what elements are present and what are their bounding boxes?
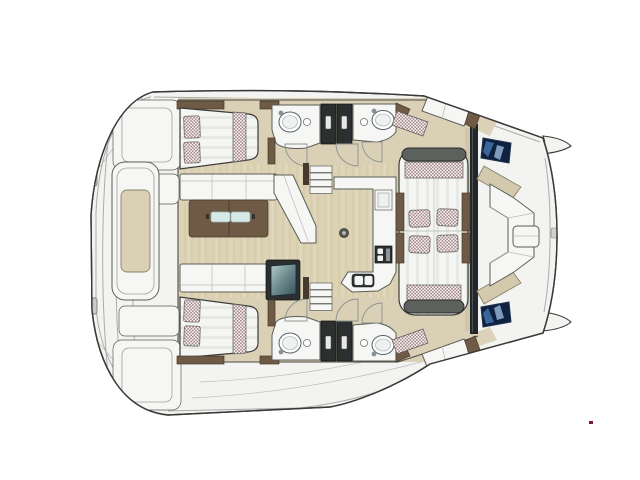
lounger-cushion <box>409 210 431 228</box>
media-cabinet <box>266 260 300 300</box>
bow-fitting <box>551 228 557 238</box>
table-glass-insert <box>231 212 250 222</box>
artifact-dot <box>589 421 593 424</box>
faucet-icon <box>372 109 377 114</box>
pillow-checkered <box>184 142 201 164</box>
yacht-floorplan-canvas <box>0 0 640 480</box>
toilet-icon <box>360 339 367 346</box>
toilet-icon <box>360 118 367 125</box>
lounger-rail <box>462 233 470 263</box>
headboard-trim-bottom <box>177 356 224 364</box>
aft-cockpit-table <box>112 162 159 300</box>
lounger-rail <box>396 233 404 263</box>
berth-blanket-band <box>233 304 246 354</box>
lounger-cushion <box>437 209 459 227</box>
cooktop <box>375 246 392 263</box>
pillow-checkered <box>184 326 201 347</box>
saloon-coffee-table <box>189 200 268 237</box>
lounger-checker-band-bottom <box>407 285 461 300</box>
lounger-checker-band-top <box>405 162 463 178</box>
double-sink <box>352 274 374 287</box>
foredeck-hatch-starboard <box>481 302 511 327</box>
lounger-headrest-top <box>402 148 466 161</box>
foredeck-table <box>513 226 539 247</box>
lounger-cushion <box>409 236 431 254</box>
lounger-headrest-bottom <box>404 300 464 313</box>
table-glass-insert <box>211 212 230 222</box>
transom-panel-bottom2 <box>119 306 179 336</box>
faucet-icon <box>279 111 284 116</box>
floorplan-drawing <box>0 0 640 480</box>
pillow-checkered <box>184 300 201 323</box>
double-sun-lounger <box>396 148 470 315</box>
pillow-checkered <box>184 116 201 139</box>
lounger-rail <box>462 193 470 231</box>
lounger-cushion <box>437 235 459 253</box>
floor-mounting-ring <box>340 229 349 238</box>
toilet-icon <box>303 118 310 125</box>
toilet-icon <box>303 339 310 346</box>
faucet-icon <box>279 350 284 355</box>
foredeck-hatch-port <box>481 138 511 163</box>
saloon-sofa-starboard <box>180 264 267 292</box>
berth-blanket-band <box>233 112 246 162</box>
lounger-rail <box>396 193 404 231</box>
faucet-icon <box>372 352 377 357</box>
